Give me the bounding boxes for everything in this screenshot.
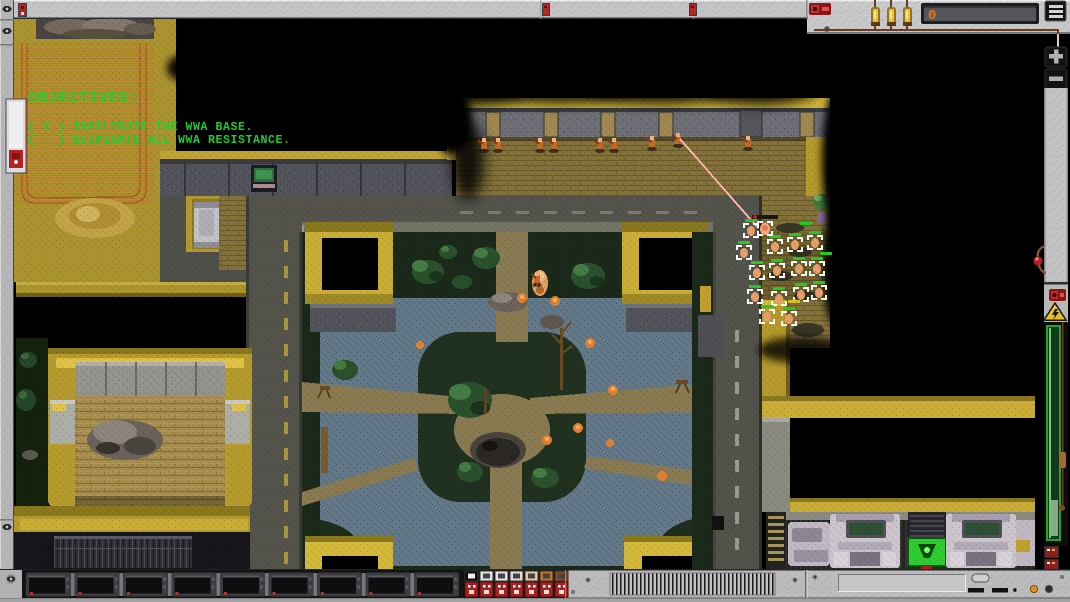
svg-text:0: 0 <box>928 8 936 24</box>
svg-text:OBJECTIVES:: OBJECTIVES: <box>29 90 139 107</box>
svg-text:( ) ELIMINATE ALL WWA RESIST: ( ) ELIMINATE ALL WWA RESISTANCE. <box>28 134 291 147</box>
svg-text:( X ) INFILTRATE THE WWA BASE.: ( X ) INFILTRATE THE WWA BASE. <box>28 121 253 134</box>
